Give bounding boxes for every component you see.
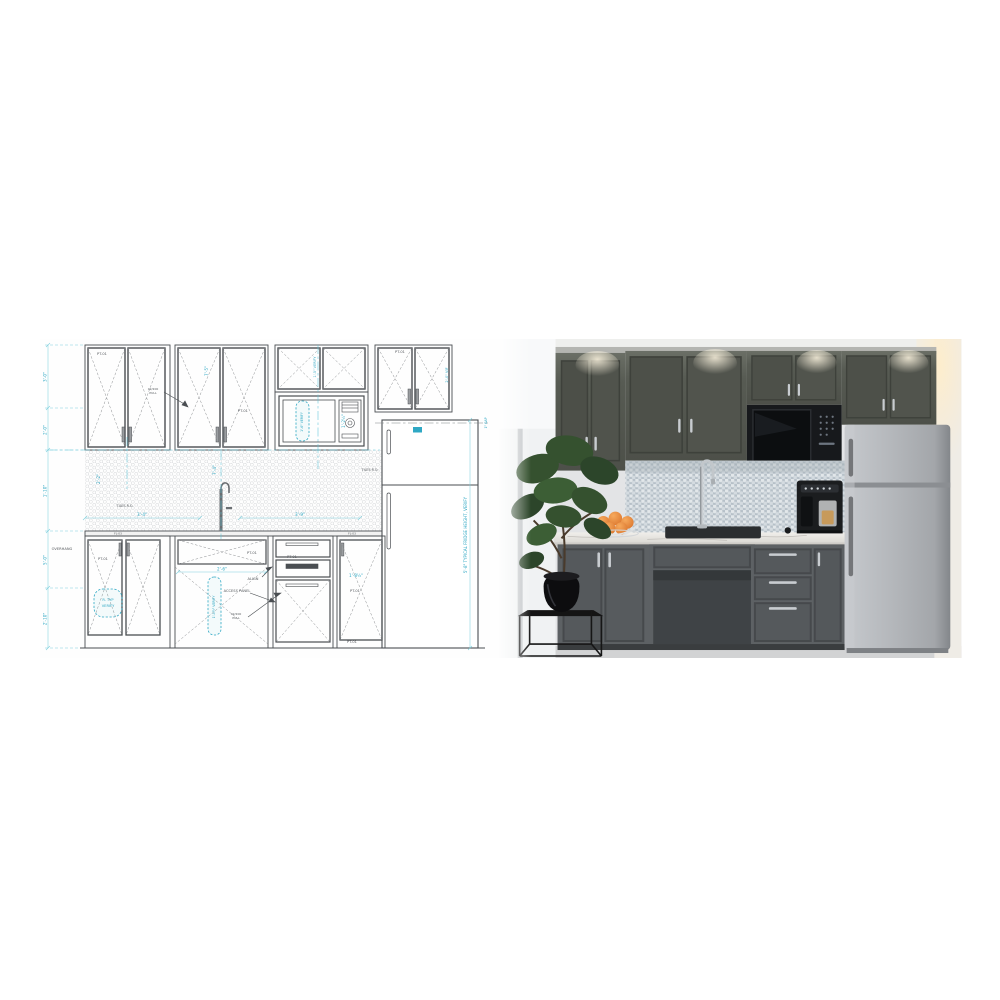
freezer-divider [845, 483, 951, 488]
kitchen-render [497, 339, 962, 658]
tag-pt01: PT-01 [98, 557, 108, 561]
note-tiles-ro-2: TILES R.O. [361, 468, 379, 472]
pull-callout-bottom-2: PULL [232, 616, 240, 620]
latte-glass [822, 510, 834, 524]
note-vif: 2'-0" VIF [445, 367, 449, 382]
spotlight-glow [797, 350, 837, 376]
dim-upper-height: 7'-5" [204, 366, 209, 376]
tag-pt01: PT-01 [97, 352, 107, 356]
cabinet-handle [678, 419, 680, 433]
drawer-pull [769, 607, 797, 610]
drawer-pull [769, 581, 797, 584]
dim-splash-height: 2'-2" [96, 474, 101, 484]
page: 3'-0" 2'-0" 1'-10" 5'-0" 2'-10" 3'-4" 3'… [0, 0, 1000, 1000]
fridge-base-shadow [847, 648, 949, 653]
tag-pt01: PT-01 [395, 350, 405, 354]
knee-space [653, 570, 751, 644]
base-handle [597, 552, 600, 567]
base-handle [608, 552, 611, 567]
dim-counter-left: 3'-4" [137, 512, 147, 517]
cloud-typ-line1: R. TYP [102, 598, 114, 602]
tag-pt01: PT-01 [238, 409, 248, 413]
blueprint-panel: 3'-0" 2'-0" 1'-10" 5'-0" 2'-10" 3'-4" 3'… [40, 339, 500, 658]
fridge-highlight [845, 425, 855, 650]
tag-fl03-2: FL-03 [348, 532, 356, 536]
dim-mw-height: 1'-2½" [341, 414, 346, 428]
drawer-pull [769, 553, 797, 556]
cloud-access-label: 1'-4½" VERIFY [212, 596, 216, 619]
note-mw-verify: 1'-5" VERIFY [313, 356, 317, 378]
refrigerator [845, 425, 951, 653]
cabinet-handle [798, 384, 800, 396]
note-fridge-height: 5'-8" TYPICAL FRIDGE HEIGHT, VERIFY [463, 496, 468, 573]
dim-sink-center: 7'-4" [212, 465, 217, 475]
dim-knee-width: 2'-6" [217, 567, 227, 572]
tag-pt01: PT-01 [287, 555, 297, 559]
comparison-band: 3'-0" 2'-0" 1'-10" 5'-0" 2'-10" 3'-4" 3'… [40, 339, 962, 658]
tile-backsplash-hatch [85, 450, 385, 531]
dim-left-2: 2'-0" [43, 425, 48, 435]
tag-pt01: PT-01 [247, 551, 257, 555]
tag-pt01: PT-01 [350, 589, 360, 593]
dim-counter-right: 3'-9" [295, 512, 305, 517]
note-align: ALIGN [248, 577, 259, 581]
cabinet-handle [883, 399, 885, 411]
dim-left-1: 3'-0" [43, 372, 48, 382]
small-cup [785, 527, 791, 533]
drawer-bank [755, 549, 811, 641]
dim-left-4: 5'-0" [43, 555, 48, 565]
pull-callout-top-2: PULL [149, 391, 157, 395]
tag-pt01: PT-01 [347, 640, 357, 644]
dim-left-5: 2'-10" [43, 613, 48, 626]
backsplash-shadow [625, 461, 844, 473]
tag-fl03-1: FL-03 [114, 532, 122, 536]
note-overhang: OVERHANG [52, 547, 73, 551]
note-gap: 1" GAP [484, 417, 488, 428]
photo-panel [497, 339, 962, 658]
base-handle [818, 552, 820, 566]
cloud-typ-line2: VERIFY [102, 604, 115, 608]
spotlight-glow [889, 350, 929, 376]
cabinet-handle [892, 399, 894, 411]
microwave-drawing [275, 392, 368, 450]
kitchen-elevation-drawing: 3'-0" 2'-0" 1'-10" 5'-0" 2'-10" 3'-4" 3'… [40, 339, 500, 658]
undermount-sink [665, 526, 761, 538]
note-tiles-ro-1: TILES R.O. [116, 504, 134, 508]
dim-left-3: 1'-10" [43, 485, 48, 498]
water-tank [801, 497, 813, 527]
dim-base-door: 1'-8½" [349, 573, 363, 578]
note-access-panel: ACCESS PANEL [224, 589, 251, 593]
cabinet-handle [690, 419, 692, 433]
door-pulls [122, 389, 419, 442]
spotlight-glow [575, 351, 619, 379]
cloud-mw-label: 1'-6" VERIFY [300, 412, 304, 432]
cabinet-handle [594, 437, 596, 451]
highlight-marker [413, 427, 422, 433]
blend-fade [497, 339, 531, 658]
countertop-section [85, 531, 385, 536]
spotlight-glow [693, 349, 737, 377]
cabinet-handle [788, 384, 790, 396]
